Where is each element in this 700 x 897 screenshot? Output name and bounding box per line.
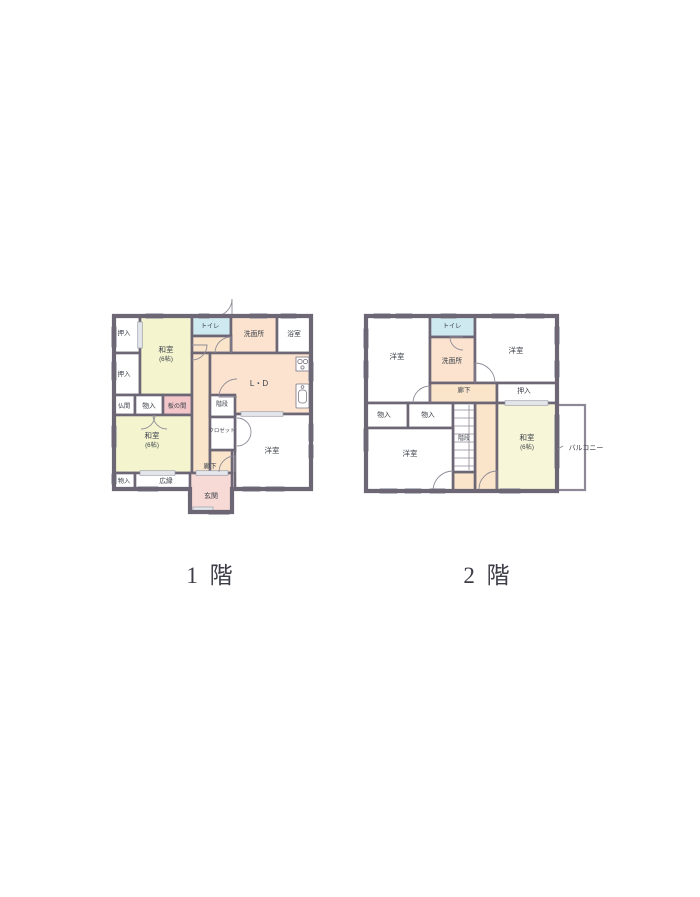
label-oshiire-left-1f: 押入 — [118, 369, 132, 378]
label-ld-1f: L・D — [250, 379, 268, 388]
floor-plan-2f: 洋室 トイレ 洗面所 洋室 廊下 押入 物入 物入 階段 洋室 和室 (6帖) … — [350, 290, 620, 505]
label-balcony-2f: バルコニー — [569, 444, 604, 452]
label-monoiri-bottom-1f: 物入 — [118, 477, 130, 485]
label-yokushitsu-1f: 浴室 — [287, 329, 301, 338]
label-rouka-1f: 廊下 — [204, 461, 218, 470]
kitchen-sink-icon — [296, 384, 309, 408]
room-hall-understairs-2f — [453, 472, 475, 491]
label-washitsu-2f: 和室 — [520, 432, 535, 442]
room-yoshitsu-bottomleft-2f — [366, 428, 453, 491]
floor-plan-1f: 押入 押入 和室 (6帖) 仏間 物入 板の間 和室 (6帖) 物入 広縁 トイ… — [100, 290, 330, 525]
label-closet-1f: クロゼット — [209, 426, 236, 434]
label-yoshitsu-bottomleft-2f: 洋室 — [403, 448, 418, 458]
floor2-caption: 2 階 — [442, 556, 534, 590]
label-kaidan-1f: 階段 — [216, 400, 228, 408]
label-washitsu-top-1f: 和室 — [159, 344, 174, 354]
label-yoshitsu-topright-2f: 洋室 — [509, 345, 524, 355]
label-oshiire-top-1f: 押入 — [118, 328, 132, 337]
room-hall-1f — [192, 353, 210, 473]
room-hall-vertical-2f — [475, 403, 497, 491]
label-yoshitsu-1f: 洋室 — [265, 445, 280, 455]
label-oshiire-2f: 押入 — [517, 386, 531, 395]
label-butsuma-1f: 仏間 — [118, 403, 130, 410]
label-yoshitsu-topleft-2f: 洋室 — [390, 351, 405, 361]
label-toilet-2f: トイレ — [443, 323, 462, 330]
floor-plan-page: 押入 押入 和室 (6帖) 仏間 物入 板の間 和室 (6帖) 物入 広縁 トイ… — [0, 0, 700, 897]
label-rouka-2f: 廊下 — [458, 385, 472, 394]
label-washitsu-size-2f: (6帖) — [520, 443, 534, 451]
label-toilet-1f: トイレ — [201, 323, 220, 330]
label-washitsu-bottom-size-1f: (6帖) — [145, 441, 159, 449]
label-itanoma-1f: 板の間 — [168, 402, 187, 410]
label-genkan-1f: 玄関 — [204, 491, 218, 500]
label-monoiri-left-2f: 物入 — [377, 410, 391, 419]
room-hall-upper-1f — [192, 336, 231, 353]
rooms-2f — [366, 316, 585, 491]
kitchen-stove-icon — [296, 357, 309, 371]
floor1-caption: 1 階 — [165, 556, 257, 590]
label-kaidan-2f: 階段 — [458, 434, 470, 442]
label-senmenjo-1f: 洗面所 — [244, 329, 265, 338]
label-hiroen-1f: 広縁 — [159, 476, 173, 485]
label-monoiri-right-2f: 物入 — [421, 410, 435, 419]
label-monoiri-mid-1f: 物入 — [142, 401, 156, 410]
label-senmenjo-2f: 洗面所 — [442, 356, 463, 365]
label-washitsu-top-size-1f: (6帖) — [159, 355, 173, 363]
label-washitsu-bottom-1f: 和室 — [145, 430, 160, 440]
